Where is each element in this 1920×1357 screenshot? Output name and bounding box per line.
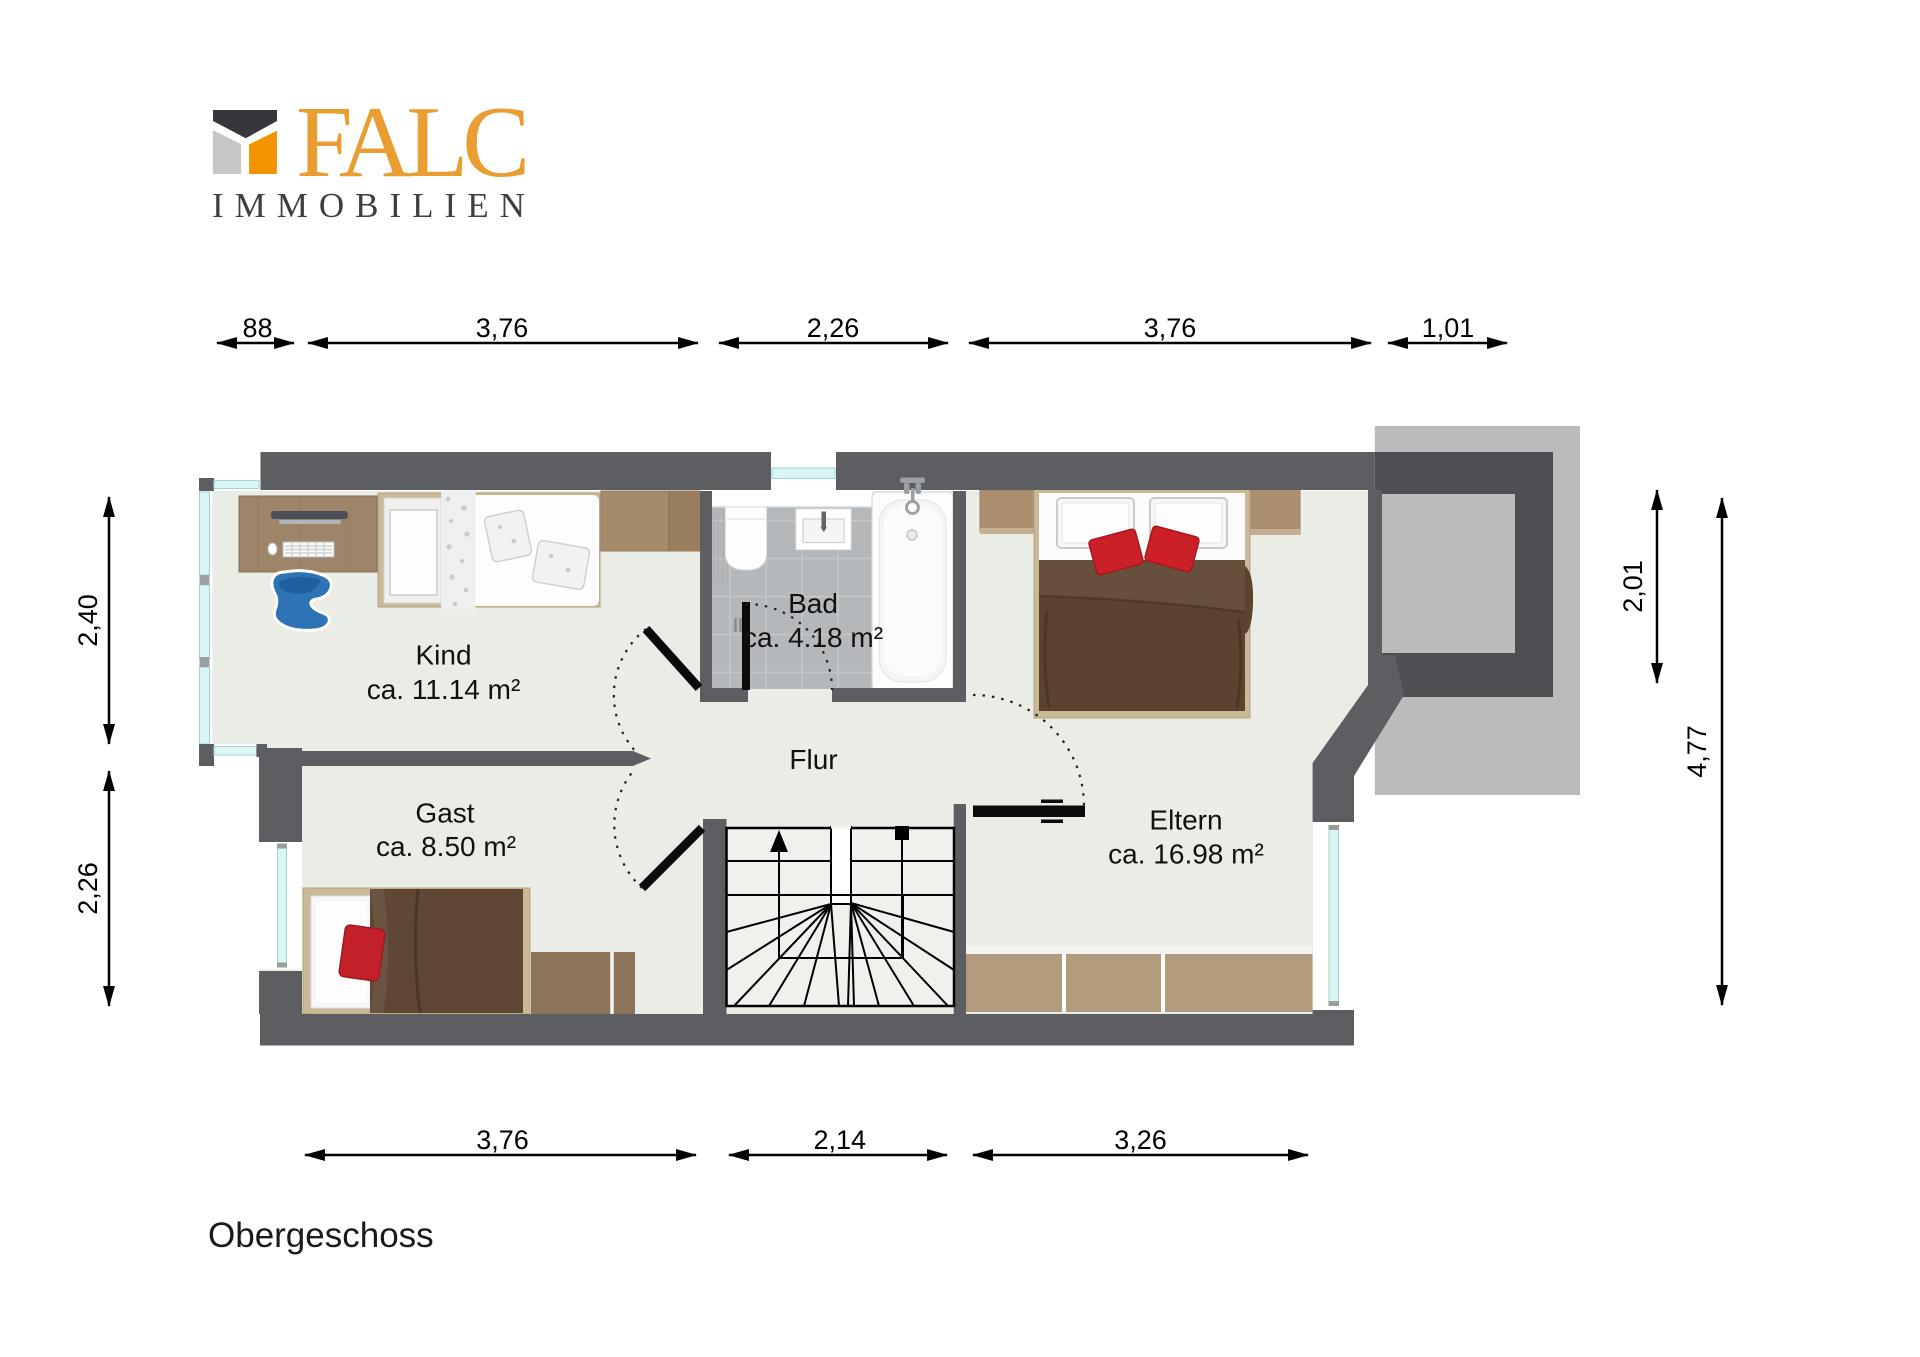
svg-text:88: 88 [242, 313, 272, 343]
svg-text:3,76: 3,76 [476, 1125, 529, 1155]
svg-text:Kind: Kind [415, 640, 471, 671]
svg-text:ca. 8.50 m²: ca. 8.50 m² [376, 831, 516, 862]
svg-text:ca. 16.98 m²: ca. 16.98 m² [1108, 839, 1264, 870]
svg-text:Bad: Bad [788, 588, 838, 619]
svg-text:ca. 11.14 m²: ca. 11.14 m² [367, 674, 521, 705]
svg-text:ca. 4.18 m²: ca. 4.18 m² [743, 622, 883, 653]
svg-text:2,01: 2,01 [1618, 560, 1648, 613]
svg-text:3,76: 3,76 [476, 313, 529, 343]
svg-text:Eltern: Eltern [1149, 805, 1222, 836]
svg-text:2,26: 2,26 [807, 313, 860, 343]
svg-text:2,40: 2,40 [73, 594, 103, 647]
svg-text:IMMOBILIEN: IMMOBILIEN [212, 186, 536, 225]
svg-text:4,77: 4,77 [1682, 725, 1712, 778]
svg-text:2,14: 2,14 [814, 1125, 867, 1155]
svg-text:3,76: 3,76 [1144, 313, 1197, 343]
svg-text:FALC: FALC [296, 86, 525, 199]
svg-text:Flur: Flur [789, 744, 837, 775]
svg-text:2,26: 2,26 [73, 862, 103, 915]
svg-text:3,26: 3,26 [1114, 1125, 1167, 1155]
svg-text:Gast: Gast [415, 798, 474, 829]
svg-text:1,01: 1,01 [1422, 313, 1475, 343]
svg-text:Obergeschoss: Obergeschoss [208, 1216, 434, 1255]
